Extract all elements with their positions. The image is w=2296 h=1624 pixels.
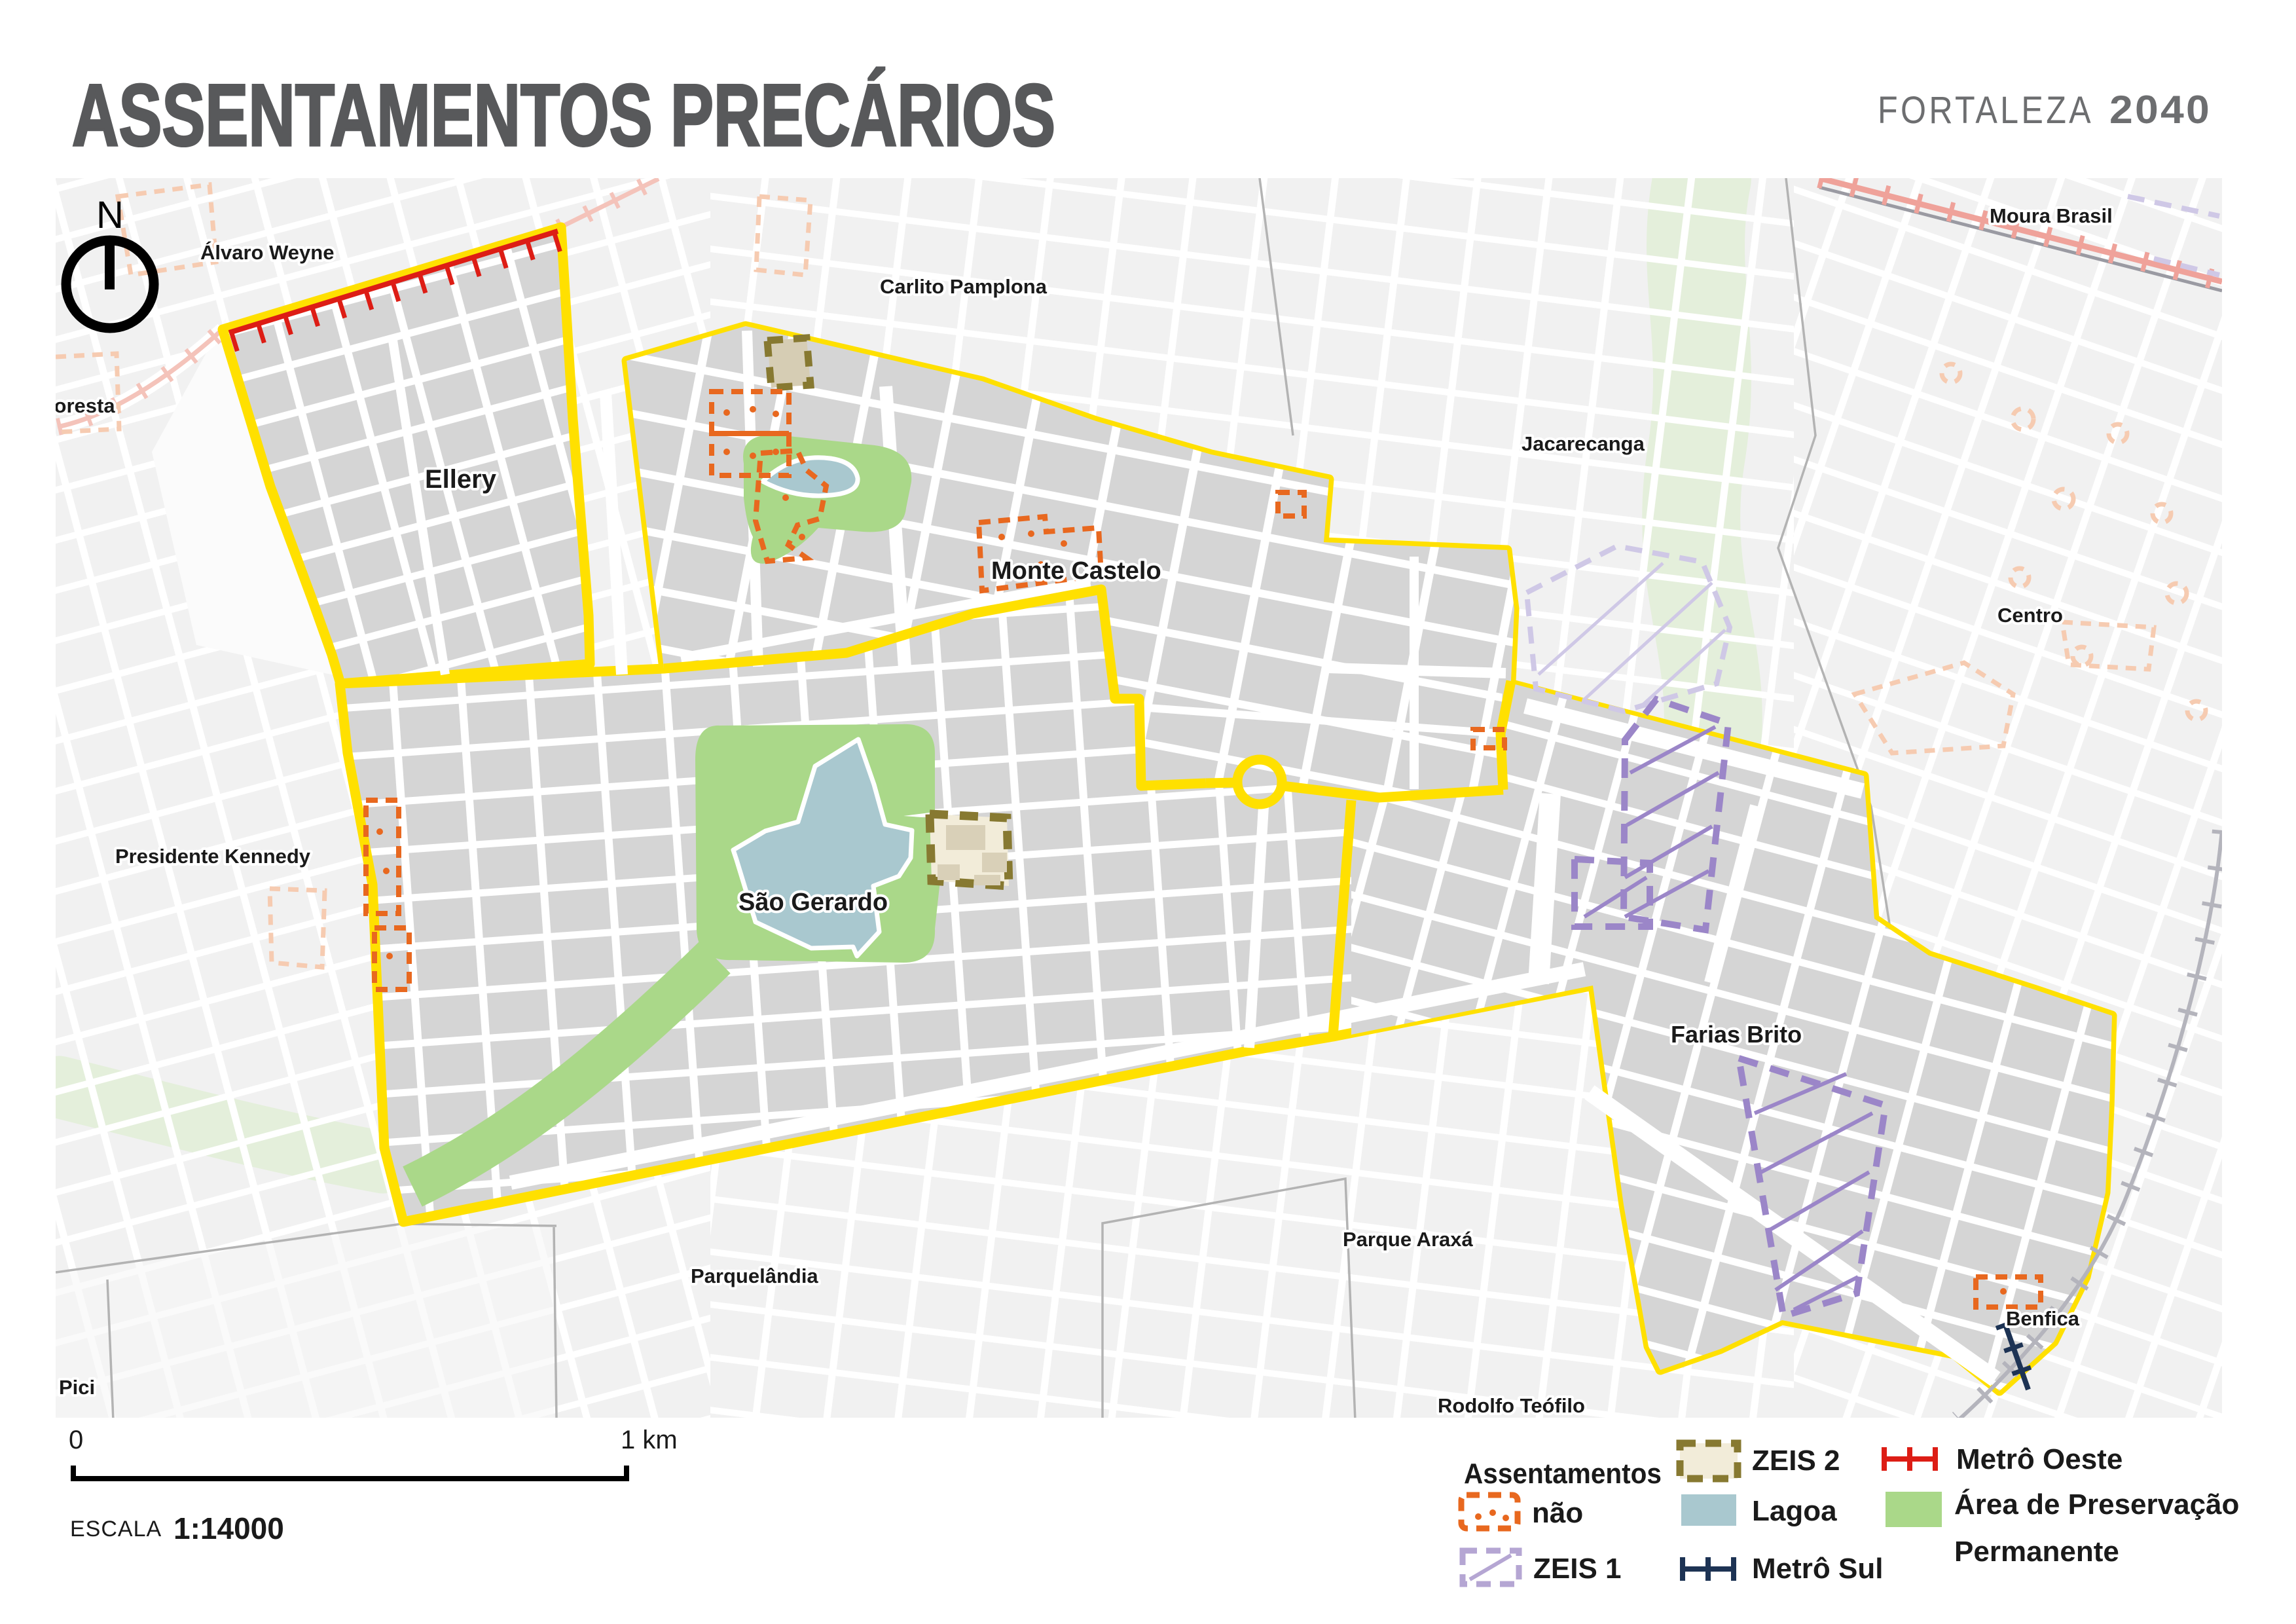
svg-text:Metrô Sul: Metrô Sul <box>1752 1553 1883 1585</box>
svg-text:Ellery: Ellery <box>425 465 497 494</box>
svg-text:Álvaro Weyne: Álvaro Weyne <box>200 241 334 264</box>
svg-text:Metrô Oeste: Metrô Oeste <box>1956 1443 2123 1475</box>
svg-text:São Gerardo: São Gerardo <box>738 889 888 916</box>
svg-text:Parquelândia: Parquelândia <box>691 1264 818 1287</box>
svg-text:não: não <box>1532 1497 1583 1529</box>
svg-text:Área de Preservação: Área de Preservação <box>1954 1488 2239 1521</box>
svg-text:Presidente Kennedy: Presidente Kennedy <box>115 845 311 868</box>
svg-text:Centro: Centro <box>1997 604 2063 627</box>
svg-text:Assentamentos: Assentamentos <box>1464 1458 1662 1490</box>
svg-text:Farias Brito: Farias Brito <box>1671 1021 1802 1048</box>
svg-text:Pici: Pici <box>59 1376 95 1399</box>
svg-text:Permanente: Permanente <box>1954 1536 2119 1568</box>
svg-text:Benfica: Benfica <box>2006 1307 2080 1330</box>
svg-text:Parque Araxá: Parque Araxá <box>1343 1228 1473 1251</box>
svg-text:N: N <box>96 194 124 236</box>
svg-text:Lagoa: Lagoa <box>1752 1495 1837 1527</box>
svg-text:Carlito Pamplona: Carlito Pamplona <box>880 275 1048 298</box>
svg-text:ZEIS 1: ZEIS 1 <box>1533 1553 1622 1585</box>
svg-text:2040: 2040 <box>2109 88 2212 132</box>
svg-text:Rodolfo Teófilo: Rodolfo Teófilo <box>1438 1394 1585 1417</box>
svg-text:ESCALA: ESCALA <box>70 1517 162 1541</box>
svg-text:FORTALEZA: FORTALEZA <box>1878 89 2094 132</box>
svg-text:1 km: 1 km <box>621 1426 678 1454</box>
svg-text:0: 0 <box>69 1426 83 1454</box>
svg-text:1:14000: 1:14000 <box>173 1511 284 1545</box>
svg-text:ZEIS 2: ZEIS 2 <box>1752 1445 1840 1477</box>
svg-text:Jacarecanga: Jacarecanga <box>1522 432 1645 455</box>
svg-text:Moura Brasil: Moura Brasil <box>1990 204 2113 227</box>
svg-text:Monte Castelo: Monte Castelo <box>991 557 1161 585</box>
svg-text:ASSENTAMENTOS PRECÁRIOS: ASSENTAMENTOS PRECÁRIOS <box>72 67 1055 164</box>
